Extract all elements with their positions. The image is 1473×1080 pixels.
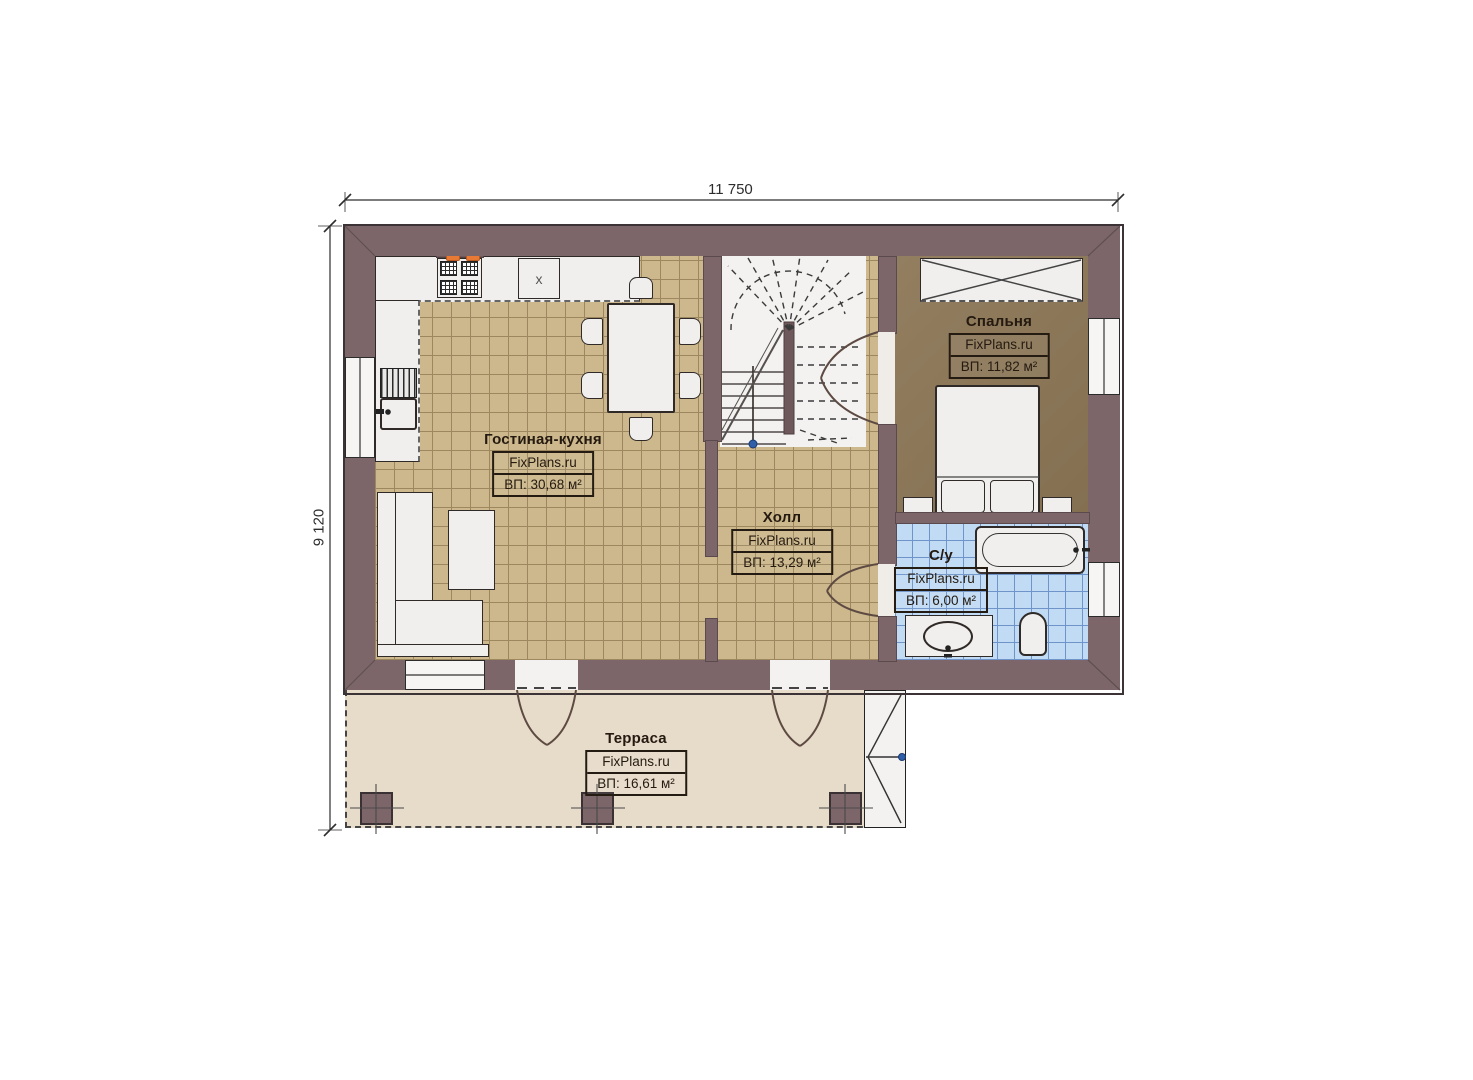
terrace-door-opening — [515, 660, 578, 690]
brand-watermark: FixPlans.ru — [951, 335, 1048, 355]
room-name: Гостиная-кухня — [484, 431, 602, 448]
room-name: Холл — [731, 509, 833, 526]
wall-hall-bedroom — [878, 256, 897, 334]
house-outline — [343, 224, 1124, 695]
area-box: FixPlans.ru ВП: 30,68 м² — [492, 451, 594, 497]
room-label-bathroom: С/у FixPlans.ru ВП: 6,00 м² — [894, 547, 988, 613]
room-label-hall: Холл FixPlans.ru ВП: 13,29 м² — [731, 509, 833, 575]
dimension-height-label: 9 120 — [311, 506, 328, 550]
window-bathroom — [1088, 562, 1120, 617]
wall-left — [345, 256, 375, 660]
wall-hall-bedroom — [878, 424, 897, 566]
wall-hall-bathroom — [878, 616, 897, 662]
wall-bedroom-bathroom — [895, 512, 1090, 524]
exterior-stairs — [864, 690, 906, 828]
wall-top — [345, 226, 1120, 256]
terrace-column — [581, 792, 614, 825]
room-label-terrace: Терраса FixPlans.ru ВП: 16,61 м² — [585, 730, 687, 796]
room-area: ВП: 16,61 м² — [587, 772, 685, 794]
area-box: FixPlans.ru ВП: 6,00 м² — [894, 567, 988, 613]
area-box: FixPlans.ru ВП: 16,61 м² — [585, 750, 687, 796]
room-name: Терраса — [585, 730, 687, 747]
room-area: ВП: 6,00 м² — [896, 589, 986, 611]
brand-watermark: FixPlans.ru — [494, 453, 592, 473]
room-label-living: Гостиная-кухня FixPlans.ru ВП: 30,68 м² — [484, 431, 602, 497]
window-left — [345, 357, 375, 458]
area-box: FixPlans.ru ВП: 11,82 м² — [949, 333, 1050, 379]
room-name: Спальня — [949, 313, 1050, 330]
terrace-column — [829, 792, 862, 825]
room-area: ВП: 30,68 м² — [494, 473, 592, 495]
room-name: С/у — [894, 547, 988, 564]
wall-living-hall — [705, 618, 718, 662]
room-area: ВП: 13,29 м² — [733, 551, 831, 573]
area-box: FixPlans.ru ВП: 13,29 м² — [731, 529, 833, 575]
terrace-column — [360, 792, 393, 825]
brand-watermark: FixPlans.ru — [896, 569, 986, 589]
room-label-bedroom: Спальня FixPlans.ru ВП: 11,82 м² — [949, 313, 1050, 379]
room-area: ВП: 11,82 м² — [951, 355, 1048, 377]
wall-living-hall — [705, 440, 718, 557]
window-bottom — [405, 660, 485, 690]
window-bedroom — [1088, 318, 1120, 395]
brand-watermark: FixPlans.ru — [733, 531, 831, 551]
wall-stairwell-left — [703, 256, 722, 442]
terrace-door-opening — [770, 660, 830, 690]
bathroom-door-opening — [878, 564, 895, 616]
dimension-width-label: 11 750 — [708, 181, 753, 198]
floor-plan-canvas: x — [0, 0, 1473, 1080]
brand-watermark: FixPlans.ru — [587, 752, 685, 772]
bedroom-door-opening — [878, 332, 895, 424]
